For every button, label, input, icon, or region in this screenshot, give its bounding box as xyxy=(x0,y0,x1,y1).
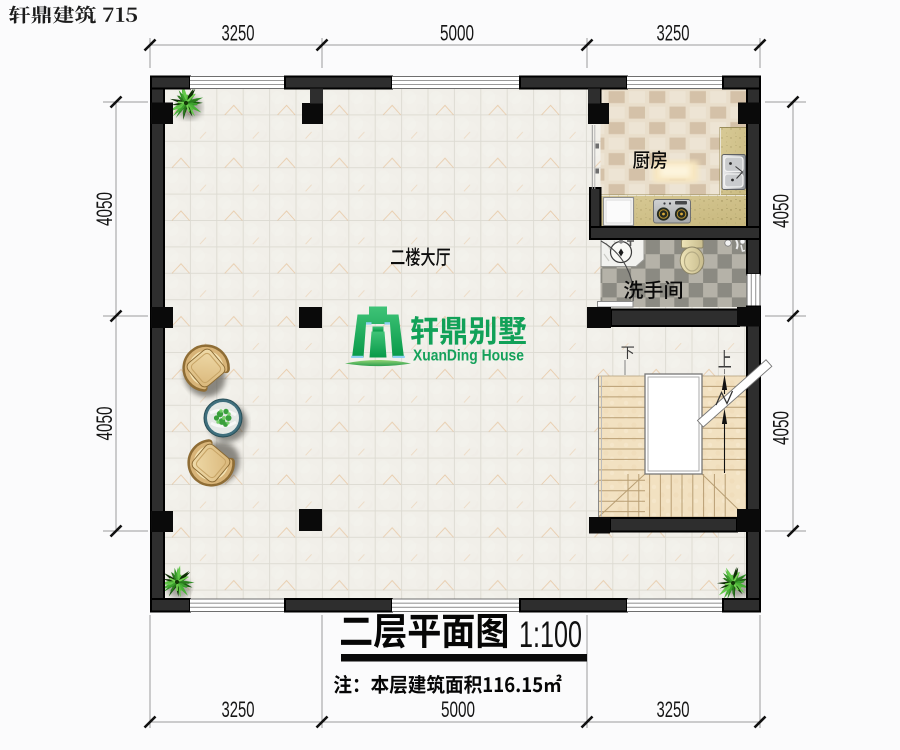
svg-text:1:100: 1:100 xyxy=(519,614,582,655)
svg-text:5000: 5000 xyxy=(441,697,475,722)
svg-text:5000: 5000 xyxy=(440,21,474,46)
svg-text:3250: 3250 xyxy=(222,697,255,722)
svg-text:3250: 3250 xyxy=(222,21,255,46)
svg-text:3250: 3250 xyxy=(657,697,690,722)
svg-text:4050: 4050 xyxy=(769,194,794,228)
svg-text:3250: 3250 xyxy=(657,21,690,46)
svg-text:4050: 4050 xyxy=(769,411,794,445)
svg-text:XuanDing House: XuanDing House xyxy=(413,348,524,365)
svg-text:4050: 4050 xyxy=(92,192,117,226)
svg-text:4050: 4050 xyxy=(92,407,117,441)
